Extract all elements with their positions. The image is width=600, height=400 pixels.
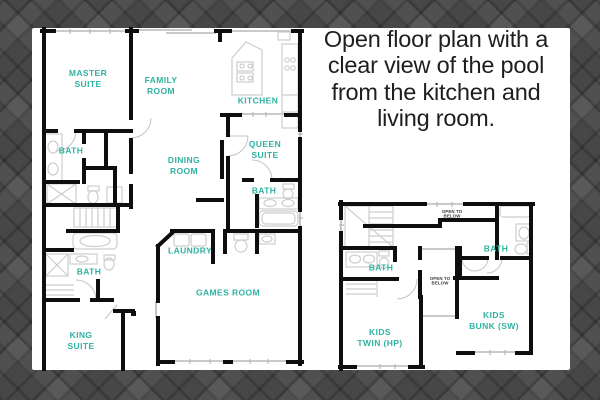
label-open-to-below-top: OPEN TO BELOW: [442, 209, 462, 219]
room-label-bath-hall: BATH: [77, 266, 102, 277]
label-open-to-below-mid: OPEN TO BELOW: [430, 276, 450, 286]
room-label-kitchen: KITCHEN: [238, 95, 279, 106]
room-label-bath-upper-left: BATH: [369, 262, 394, 273]
door-stop-dot: [131, 311, 136, 316]
slide-background: Open floor plan with a clear view of the…: [0, 0, 600, 400]
room-label-bath-upper-right: BATH: [484, 243, 509, 254]
room-label-laundry: LAUNDRY: [168, 245, 212, 256]
room-label-king-suite: KING SUITE: [67, 330, 94, 352]
room-label-kids-twin: KIDS TWIN (HP): [357, 327, 402, 349]
room-label-games-room: GAMES ROOM: [196, 287, 260, 298]
room-label-family-room: FAMILY ROOM: [145, 75, 178, 97]
room-label-bath-queen: BATH: [252, 185, 277, 196]
room-label-master-suite: MASTER SUITE: [69, 68, 107, 90]
room-label-queen-suite: QUEEN SUITE: [249, 139, 281, 161]
room-label-bath-master: BATH: [59, 145, 84, 156]
caption-text: Open floor plan with a clear view of the…: [304, 26, 568, 131]
room-label-kids-bunk: KIDS BUNK (SW): [469, 310, 519, 332]
room-label-dining-room: DINING ROOM: [168, 155, 200, 177]
